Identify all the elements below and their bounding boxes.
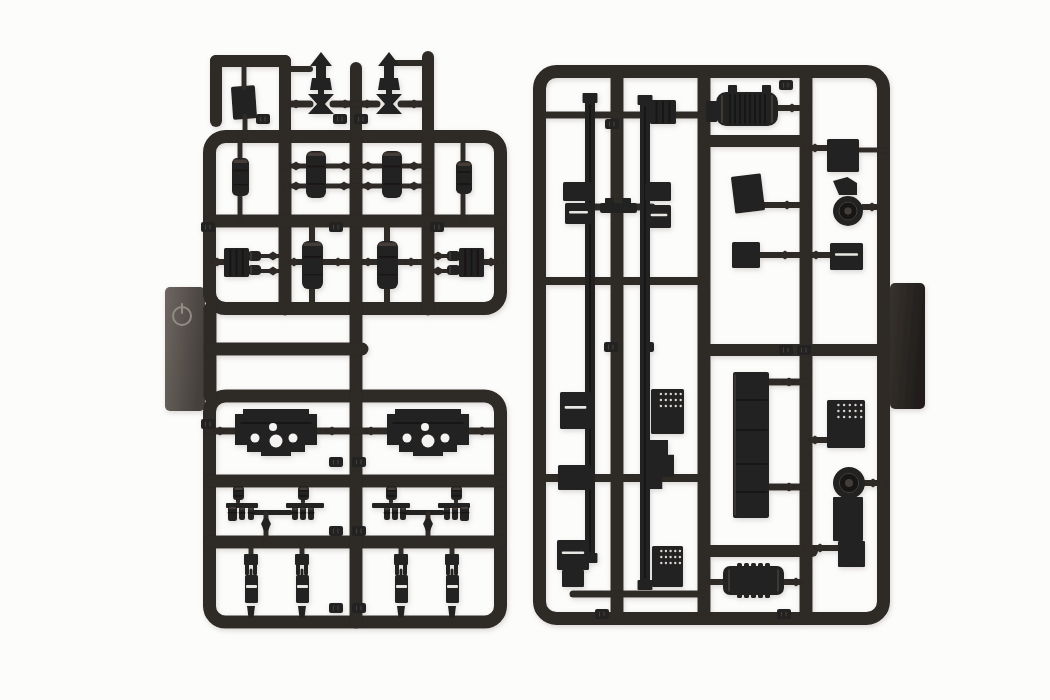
part-box xyxy=(558,465,591,490)
box-vent-dot xyxy=(665,405,667,407)
valve-cap xyxy=(401,508,405,510)
part-box xyxy=(830,243,863,270)
box-vent-dot xyxy=(670,393,672,395)
part-valve xyxy=(384,507,390,520)
part-shape xyxy=(382,151,402,198)
part-shape xyxy=(622,198,631,205)
ribbed-fin xyxy=(765,563,770,598)
part-shape xyxy=(732,242,760,268)
box-vent-dot xyxy=(860,410,862,412)
sprue-product-photo xyxy=(0,0,1050,700)
id-tag xyxy=(329,222,343,232)
id-tag xyxy=(354,114,368,124)
shock-body xyxy=(395,575,408,603)
id-tag xyxy=(352,526,366,536)
box-vent-dot xyxy=(660,550,662,552)
valve-cap xyxy=(453,508,457,510)
mold-tab-right xyxy=(890,283,925,409)
part-cylinder xyxy=(377,241,398,289)
part-box xyxy=(652,546,683,587)
valve-cap xyxy=(301,508,305,510)
part-suspension-plate xyxy=(235,409,317,456)
shock-bracket xyxy=(295,554,309,565)
part-box xyxy=(651,389,684,434)
tank-body xyxy=(716,92,778,126)
id-tag xyxy=(329,457,343,467)
valve-cap xyxy=(393,508,397,510)
part-valve xyxy=(239,507,245,520)
part-shape xyxy=(557,540,589,570)
box-slot xyxy=(565,406,587,409)
photo-stage xyxy=(0,0,1050,700)
part-shape xyxy=(302,241,323,289)
valve-cap xyxy=(309,508,313,510)
cylinder-cap xyxy=(384,153,401,157)
part-box xyxy=(224,248,249,277)
box-slot xyxy=(651,214,668,217)
part-valve xyxy=(392,507,398,520)
shock-pin xyxy=(253,564,257,575)
shock-slot xyxy=(447,585,458,588)
valve-cap xyxy=(240,508,244,510)
part-box xyxy=(563,182,591,201)
box-vent-dot xyxy=(660,556,662,558)
part-box xyxy=(647,205,671,228)
tank-mount xyxy=(706,101,717,122)
box-vent-dot xyxy=(837,404,839,406)
box-vent-dot xyxy=(665,399,667,401)
box-vent-dot xyxy=(665,556,667,558)
mold-tab-left xyxy=(165,287,205,411)
part-shape xyxy=(605,198,614,205)
shock-body xyxy=(446,575,459,603)
box-vent-dot xyxy=(674,562,676,564)
box-vent-dot xyxy=(665,393,667,395)
box-vent-dot xyxy=(660,562,662,564)
part-cylinder xyxy=(233,486,244,500)
part-valve xyxy=(452,507,458,520)
part-shape xyxy=(830,243,863,270)
box-slot xyxy=(569,211,588,214)
shock-slot xyxy=(396,585,407,588)
valve-cap xyxy=(249,508,253,510)
shock-pin xyxy=(403,564,407,575)
valve-cap xyxy=(461,507,468,509)
coupler-base xyxy=(378,78,400,90)
box-vent-dot xyxy=(670,405,672,407)
part-cylinder xyxy=(456,161,472,194)
part-box xyxy=(827,400,865,448)
part-cylinder xyxy=(306,151,326,198)
part-shape xyxy=(377,241,398,289)
id-tag xyxy=(352,603,366,613)
box-vent-dot xyxy=(843,410,845,412)
part-ribbed-unit xyxy=(723,563,784,598)
part-shape xyxy=(731,173,765,213)
shock-bracket xyxy=(394,554,408,565)
part-block xyxy=(404,510,444,515)
plate-hole xyxy=(289,434,298,443)
ribbed-fin xyxy=(744,563,749,598)
id-tag xyxy=(352,457,366,467)
part-valve xyxy=(444,507,450,520)
coupler-base xyxy=(310,78,332,90)
ribbed-fin xyxy=(758,563,763,598)
box-vent-dot xyxy=(669,562,671,564)
part-cylinder xyxy=(386,486,397,500)
part-shape xyxy=(651,389,684,434)
box-vent-dot xyxy=(854,410,856,412)
hub-center xyxy=(844,207,852,215)
box-vent-dot xyxy=(660,405,662,407)
id-tag xyxy=(797,345,811,355)
box-vent-dot xyxy=(660,399,662,401)
part-shape xyxy=(645,182,671,201)
box-vent-dot xyxy=(665,562,667,564)
part-block xyxy=(833,497,863,541)
box-vent-dot xyxy=(837,410,839,412)
id-tag xyxy=(779,80,793,90)
box-vent-dot xyxy=(849,410,851,412)
part-box xyxy=(459,248,484,277)
part-valve xyxy=(248,507,254,520)
part-valve xyxy=(400,507,406,520)
box-vent-dot xyxy=(674,550,676,552)
box-vent-dot xyxy=(854,404,856,406)
plate-body xyxy=(235,409,317,456)
box-vent-dot xyxy=(860,416,862,418)
part-shape xyxy=(652,546,683,587)
part-box xyxy=(650,100,676,124)
box-vent-dot xyxy=(660,393,662,395)
part-suspension-plate xyxy=(387,409,469,456)
id-tag xyxy=(777,609,791,619)
box-vent-dot xyxy=(675,405,677,407)
ribbed-fin xyxy=(737,563,742,598)
part-cylinder-horizontal xyxy=(447,251,460,261)
shock-slot xyxy=(246,585,257,588)
id-tag xyxy=(605,119,619,129)
valve-cap xyxy=(445,508,449,510)
part-shape xyxy=(306,151,326,198)
box-vent-dot xyxy=(679,550,681,552)
shock-pin xyxy=(395,564,399,575)
part-cylinder-horizontal xyxy=(248,265,261,275)
part-block xyxy=(286,503,324,508)
part-box xyxy=(827,139,859,172)
box-vent-dot xyxy=(843,404,845,406)
box-vent-dot xyxy=(843,416,845,418)
part-shape xyxy=(558,465,591,490)
box-vent-dot xyxy=(854,416,856,418)
part-valve xyxy=(460,506,469,521)
part-shape xyxy=(447,251,460,261)
plate-hole xyxy=(441,434,450,443)
part-block xyxy=(838,541,865,567)
part-valve xyxy=(308,507,314,520)
valve-cap xyxy=(293,508,297,510)
plate-body xyxy=(387,409,469,456)
box-vent-dot xyxy=(669,550,671,552)
shock-body xyxy=(245,575,258,603)
part-box xyxy=(560,392,591,429)
id-tag xyxy=(604,342,618,352)
part-shape xyxy=(827,139,859,172)
cylinder-cap xyxy=(379,243,397,247)
cylinder-cap xyxy=(234,160,248,164)
ribbed-fin xyxy=(751,563,756,598)
id-tag xyxy=(779,345,793,355)
part-block xyxy=(562,570,584,587)
id-tag xyxy=(256,114,270,124)
shock-bracket xyxy=(244,554,258,565)
part-valve xyxy=(300,507,306,520)
part-shape xyxy=(647,205,671,228)
box-vent-dot xyxy=(849,404,851,406)
part-cylinder xyxy=(232,158,249,196)
id-tag xyxy=(201,222,215,232)
id-tag xyxy=(329,526,343,536)
part-long-box xyxy=(733,372,769,518)
shock-bracket xyxy=(445,554,459,565)
id-tag xyxy=(333,114,347,124)
part-box xyxy=(731,173,765,213)
box-vent-dot xyxy=(670,399,672,401)
part-shape xyxy=(563,182,591,201)
box-vent-dot xyxy=(860,404,862,406)
part-box xyxy=(732,242,760,268)
part-box xyxy=(557,540,589,570)
box-vent-dot xyxy=(675,399,677,401)
part-shape xyxy=(232,158,249,196)
shock-slot xyxy=(297,585,308,588)
tank-nub xyxy=(728,85,737,93)
plate-hole xyxy=(269,423,277,431)
part-cylinder xyxy=(302,241,323,289)
cylinder-cap xyxy=(304,243,322,247)
coupler-shaft xyxy=(316,65,326,78)
part-shape xyxy=(560,392,591,429)
rail-flange xyxy=(638,580,653,590)
rail-flange xyxy=(583,93,598,103)
box-vent-dot xyxy=(680,393,682,395)
box-vent-dot xyxy=(669,556,671,558)
box-vent-dot xyxy=(679,556,681,558)
id-tag xyxy=(201,419,215,429)
cylinder-cap xyxy=(308,153,325,157)
shock-pin xyxy=(454,564,458,575)
part-shape xyxy=(447,265,460,275)
part-cylinder xyxy=(382,151,402,198)
part-cylinder-horizontal xyxy=(248,251,261,261)
part-shape xyxy=(827,400,865,448)
part-shape xyxy=(248,251,261,261)
id-tag xyxy=(430,222,444,232)
part-cylinder xyxy=(298,486,309,500)
plate-hole xyxy=(403,434,412,443)
box-slot xyxy=(835,253,858,256)
shock-pin xyxy=(245,564,249,575)
box-slot xyxy=(562,551,584,554)
box-vent-dot xyxy=(837,416,839,418)
valve-cap xyxy=(385,508,389,510)
part-block xyxy=(252,510,292,515)
part-cylinder xyxy=(451,486,462,500)
plate-hole xyxy=(251,434,260,443)
plate-hole xyxy=(421,423,429,431)
plate-hole xyxy=(270,435,283,448)
box-vent-dot xyxy=(680,405,682,407)
id-tag xyxy=(595,609,609,619)
shock-pin xyxy=(304,564,308,575)
tank-nub xyxy=(762,85,771,93)
shock-pin xyxy=(446,564,450,575)
part-valve xyxy=(228,506,237,521)
box-vent-dot xyxy=(675,393,677,395)
box-vent-dot xyxy=(680,399,682,401)
coupler-shaft xyxy=(384,65,394,78)
part-valve xyxy=(292,507,298,520)
box-vent-dot xyxy=(665,550,667,552)
hub-center xyxy=(845,479,853,487)
shock-body xyxy=(296,575,309,603)
part-shape xyxy=(248,265,261,275)
shock-pin xyxy=(296,564,300,575)
box-vent-dot xyxy=(679,562,681,564)
box-vent-dot xyxy=(849,416,851,418)
cylinder-cap xyxy=(458,163,471,167)
box-vent-dot xyxy=(674,556,676,558)
plate-hole xyxy=(422,435,435,448)
part-cylinder-horizontal xyxy=(447,265,460,275)
part-blower-hub xyxy=(833,467,865,499)
part-blower-hub xyxy=(833,196,863,226)
part-box xyxy=(565,203,592,224)
valve-cap xyxy=(229,507,236,509)
part-box xyxy=(645,182,671,201)
id-tag xyxy=(329,603,343,613)
part-shape xyxy=(733,372,769,518)
